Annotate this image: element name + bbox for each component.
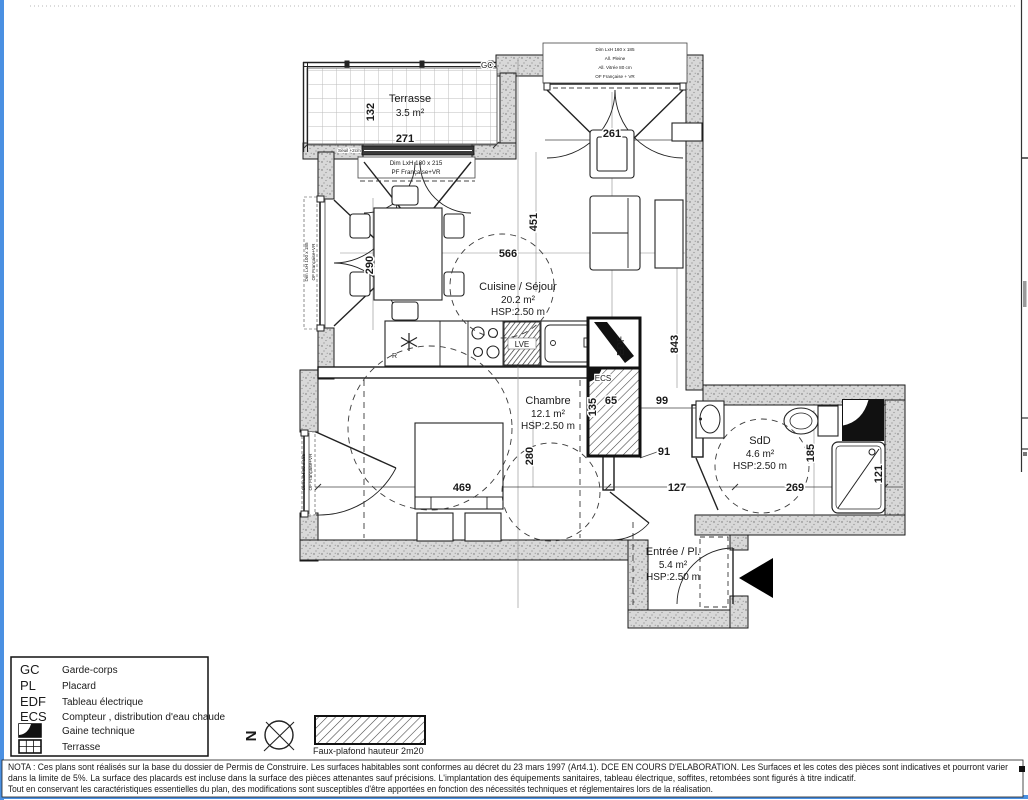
dim-290: 290	[364, 256, 376, 274]
win-top-l4: OF Française + VR	[595, 74, 635, 79]
faux-plafond-legend: Faux-plafond hauteur 2m20	[313, 716, 425, 756]
svg-text:Dim LxH 90 x 185: Dim LxH 90 x 185	[301, 453, 306, 490]
win-top-l1: Dim LxH 160 x 185	[595, 47, 635, 52]
cuisine-area: 20.2 m²	[501, 295, 536, 306]
legend-key-ecs: ECS	[20, 709, 47, 724]
fridge-label: R	[392, 353, 397, 360]
dim-135: 135	[587, 398, 599, 416]
nota-block: NOTA : Ces plans sont réalisés sur la ba…	[2, 760, 1025, 797]
chambre-area: 12.1 m²	[531, 409, 566, 420]
entree-area: 5.4 m²	[659, 560, 688, 571]
dim-469: 469	[453, 482, 471, 494]
gc-label: GC	[481, 61, 493, 70]
toilet-icon	[784, 406, 838, 436]
dim-261: 261	[603, 128, 621, 140]
legend-label-gc: Garde-corps	[62, 665, 118, 676]
legend-label-pl: Placard	[62, 681, 96, 692]
dim-451: 451	[528, 213, 540, 231]
svg-text:Dim LxH 100 x 185: Dim LxH 100 x 185	[304, 242, 309, 282]
faux-plafond-label: Faux-plafond hauteur 2m20	[313, 746, 424, 756]
nota-line1: NOTA : Ces plans sont réalisés sur la ba…	[8, 762, 1008, 772]
sdd-area: 4.6 m²	[746, 449, 775, 460]
entree-name: Entrée / Pl.	[646, 546, 700, 558]
edf-label: EDF	[616, 336, 627, 356]
cuisine-hsp: HSP:2.50 m	[491, 307, 545, 318]
sdd-name: SdD	[749, 435, 770, 447]
dim-99: 99	[656, 395, 668, 407]
svg-text:OF Française+VR: OF Française+VR	[311, 243, 316, 281]
left-blue-border	[0, 0, 4, 800]
dim-271: 271	[396, 133, 414, 145]
kitchen: R LVE	[385, 321, 595, 366]
sink-icon	[545, 325, 591, 362]
terrace-door-type: PF Française+VR	[391, 169, 441, 176]
sideboard	[655, 200, 683, 268]
legend-label-edf: Tableau électrique	[62, 697, 144, 708]
gaine-technique-icon	[843, 400, 883, 440]
nota-line2: dans la limite de 5%. La surface des pla…	[8, 773, 856, 783]
sdd-hsp: HSP:2.50 m	[733, 461, 787, 472]
win-top-l2: All. Pleine	[605, 56, 626, 61]
sofa	[590, 196, 640, 270]
dishwasher-label: LVE	[515, 340, 530, 349]
legend-label-gaine: Gaine technique	[62, 726, 135, 737]
legend-key-pl: PL	[20, 678, 36, 693]
compass-north-label: N	[243, 731, 260, 742]
nightstand-left	[417, 513, 453, 541]
dim-127: 127	[668, 482, 686, 494]
dim-185: 185	[805, 444, 817, 462]
dim-843: 843	[669, 335, 681, 353]
terrasse-name: Terrasse	[389, 93, 431, 105]
svg-text:OF Française+VR: OF Française+VR	[308, 453, 313, 491]
seuil-label: Seuil +2cm	[338, 148, 361, 153]
technical-shaft: EDF ECS	[588, 318, 640, 456]
chambre-hsp: HSP:2.50 m	[521, 421, 575, 432]
west-window-chambre: Dim LxH 90 x 185 OF Française+VR	[301, 430, 396, 517]
dim-132: 132	[365, 103, 377, 121]
dim-121: 121	[873, 465, 885, 483]
legend-label-ecs: Compteur , distribution d'eau chaude	[62, 712, 226, 723]
cuisine-name: Cuisine / Séjour	[479, 281, 557, 293]
bed	[415, 423, 503, 509]
dim-280: 280	[524, 447, 536, 465]
entrance-arrow-icon	[739, 558, 773, 598]
dining-table	[374, 208, 442, 300]
legend-gaine-icon	[19, 724, 41, 737]
entree-hsp: HSP:2.50 m	[646, 572, 700, 583]
dim-65: 65	[605, 395, 617, 407]
floorplan-svg: GC Terrasse 3.5 m² Seuil +2cm Dim LxH 18…	[0, 0, 1028, 800]
nightstand-right	[465, 513, 501, 541]
console-table	[672, 123, 702, 141]
dim-269: 269	[786, 482, 804, 494]
ecs-label: ECS	[595, 374, 611, 383]
terrasse-area: 3.5 m²	[396, 108, 425, 119]
dim-91: 91	[658, 446, 670, 458]
compass: N	[243, 721, 294, 751]
titleblock-edge	[1021, 0, 1028, 472]
placard-outline	[700, 537, 728, 607]
legend-key-edf: EDF	[20, 694, 46, 709]
floorplan-page: GC Terrasse 3.5 m² Seuil +2cm Dim LxH 18…	[0, 0, 1028, 800]
chambre-door-leaf	[610, 492, 649, 523]
washbasin-icon	[696, 401, 724, 438]
nota-line3: Tout en conservant les caractéristiques …	[8, 784, 713, 794]
terrace-door-dim: Dim LxH 180 x 215	[390, 160, 443, 167]
legend: GC Garde-corps PL Placard EDF Tableau él…	[11, 657, 226, 756]
dim-566: 566	[499, 248, 517, 260]
win-top-l3: All. Vitrée 80 cm	[598, 65, 632, 70]
faux-plafond-swatch	[315, 716, 425, 744]
chambre-name: Chambre	[525, 395, 570, 407]
legend-key-gc: GC	[20, 662, 40, 677]
bathroom	[696, 400, 885, 513]
interior-partitions	[318, 367, 703, 490]
legend-terrasse-icon	[19, 740, 41, 753]
legend-label-terrasse: Terrasse	[62, 742, 101, 753]
